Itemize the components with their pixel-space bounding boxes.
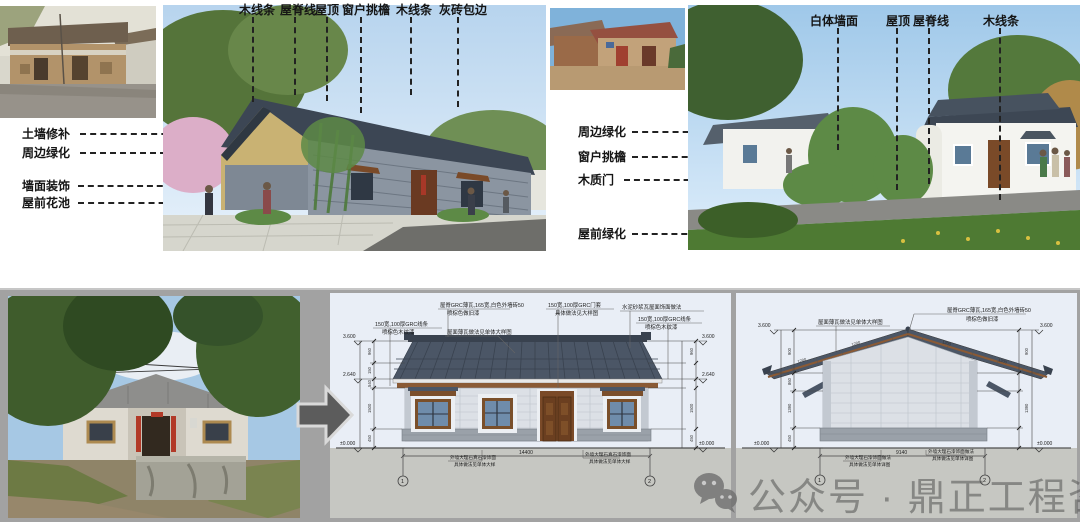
callout-text: 屋面薄瓦做法见单体大样图 (447, 328, 512, 336)
label-ridge-line-2: 屋脊线 (913, 14, 949, 28)
seg-dim: 450 (787, 434, 792, 442)
note-text: 具体做法见单体大样 (589, 458, 631, 465)
leader-line (928, 28, 930, 184)
leader-line (326, 17, 328, 101)
door (537, 389, 577, 441)
leader-line (294, 17, 296, 95)
callout-text: 屋脊GRC薄瓦,165宽,白色外墙砖50 (440, 301, 524, 309)
leader-line (999, 28, 1001, 200)
seg-dim: 1390 (1024, 403, 1029, 413)
level-text: 3.600 (758, 323, 771, 329)
level-text: 3.600 (343, 334, 356, 340)
watermark-text: 公众号 · 鼎正工程咨询 (748, 466, 1080, 521)
wechat-icon (692, 470, 740, 514)
arrow-right-icon (296, 384, 354, 446)
seg-dim: 900 (1024, 347, 1029, 355)
note-text: 外墙大理石真石漆饰面 (585, 451, 631, 458)
front-elevation-art: 150宽,100厚GRC线条 喷棕色木纹漆 屋脊GRC薄瓦,165宽,白色外墙砖… (330, 293, 731, 518)
label-roof-2: 屋顶 (886, 14, 910, 28)
note-text: 外墙大理石漆饰面做法 (928, 448, 974, 455)
label-grey-brick-edge: 灰砖包边 (439, 3, 487, 17)
callout-text: 具体做法见大样图 (555, 309, 598, 317)
overall-width: 9140 (896, 450, 907, 456)
render-after-1 (163, 5, 546, 251)
axis-bubble: 1 (401, 479, 404, 485)
seg-dim: 1500 (689, 403, 694, 413)
leader-line (410, 17, 412, 95)
annotation-surround-greening-1: 周边绿化 (22, 146, 70, 160)
label-ridge-line-1: 屋脊线 (280, 3, 316, 17)
annotation-wall-decoration: 墙面装饰 (22, 179, 70, 193)
leader-line (837, 28, 839, 150)
callout-text: 喷棕色做旧漆 (966, 315, 999, 323)
callout-text: 屋脊GRC薄瓦,165宽,白色外墙砖50 (947, 306, 1031, 314)
level-text: 3.600 (1040, 323, 1053, 329)
front-elevation-drawing: 150宽,100厚GRC线条 喷棕色木纹漆 屋脊GRC薄瓦,165宽,白色外墙砖… (330, 293, 731, 518)
annotation-window-eave-2: 窗户挑檐 (578, 150, 626, 164)
annotation-front-greening: 屋前绿化 (578, 227, 626, 241)
seg-dim: 960 (367, 347, 372, 355)
window-center (478, 394, 517, 433)
leader-line (252, 17, 254, 102)
page: 土墙修补 周边绿化 墙面装饰 屋前花池 (0, 0, 1080, 531)
transform-arrow (296, 384, 354, 446)
before-photo-2 (550, 8, 685, 90)
seg-dim: 150 (367, 366, 372, 374)
before-photo-3 (8, 296, 300, 518)
annotation-surround-greening-2: 周边绿化 (578, 125, 626, 139)
label-roof-1: 屋顶 (315, 3, 339, 17)
callout-text: 屋面薄瓦做法见单体大样图 (818, 318, 883, 326)
annotation-wood-door: 木质门 (578, 173, 614, 187)
leader-line (360, 17, 362, 113)
before-photo-2-art (550, 8, 685, 90)
render-after-2-art (688, 5, 1080, 250)
level-text: 3.600 (702, 334, 715, 340)
label-window-eave-1: 窗户挑檐 (342, 3, 390, 17)
level-text: ±0.000 (754, 441, 769, 447)
level-text: ±0.000 (699, 441, 714, 447)
callout-text: 150宽,100厚GRC门套 (548, 301, 602, 309)
seg-dim: 900 (787, 347, 792, 355)
note-text: 外墙大理石漆饰面做法 (845, 454, 891, 461)
seg-dim: 1390 (787, 403, 792, 413)
axis-bubble: 2 (648, 479, 651, 485)
before-photo-3-art (8, 296, 300, 518)
label-wood-trim-2: 木线条 (396, 3, 432, 17)
render-after-1-art (163, 5, 546, 251)
render-after-2 (688, 5, 1080, 250)
annotation-soil-wall-repair: 土墙修补 (22, 127, 70, 141)
window-left (408, 387, 458, 432)
overall-width: 14400 (519, 450, 533, 456)
label-wood-trim-1: 木线条 (239, 3, 275, 17)
note-text: 具体做法见单体大样 (454, 461, 496, 468)
before-photo-1-art (0, 6, 156, 118)
note-text: 具体做法见单体详图 (932, 455, 974, 462)
label-white-wall: 白体墙面 (810, 14, 858, 28)
level-text: 2.640 (702, 372, 715, 378)
seg-dim: 860 (787, 377, 792, 385)
seg-dim: 450 (367, 434, 372, 442)
callout-text: 150宽,100厚GRC线条 (375, 320, 429, 328)
wechat-icon-art (692, 470, 740, 514)
seg-dim: 540 (367, 379, 372, 387)
seg-dim: 1500 (367, 403, 372, 413)
before-photo-1 (0, 6, 156, 118)
leader-line (457, 17, 459, 107)
callout-text: 150宽,100厚GRC线条 (638, 315, 692, 323)
annotation-front-flower-bed: 屋前花池 (22, 196, 70, 210)
level-text: 2.640 (343, 372, 356, 378)
window-right (600, 387, 645, 432)
callout-text: 喷棕色木纹漆 (645, 323, 678, 331)
leader-line (896, 28, 898, 190)
callout-text: 水泥砂浆瓦屋面饰面做法 (622, 303, 682, 311)
callout-text: 喷棕色做旧漆 (447, 309, 480, 317)
level-text: ±0.000 (1037, 441, 1052, 447)
callout-text: 喷棕色木纹漆 (382, 328, 415, 336)
seg-dim: 450 (689, 434, 694, 442)
label-wood-trim-3: 木线条 (983, 14, 1019, 28)
seg-dim: 960 (689, 347, 694, 355)
note-text: 外墙大理石真石漆饰面 (450, 454, 496, 461)
